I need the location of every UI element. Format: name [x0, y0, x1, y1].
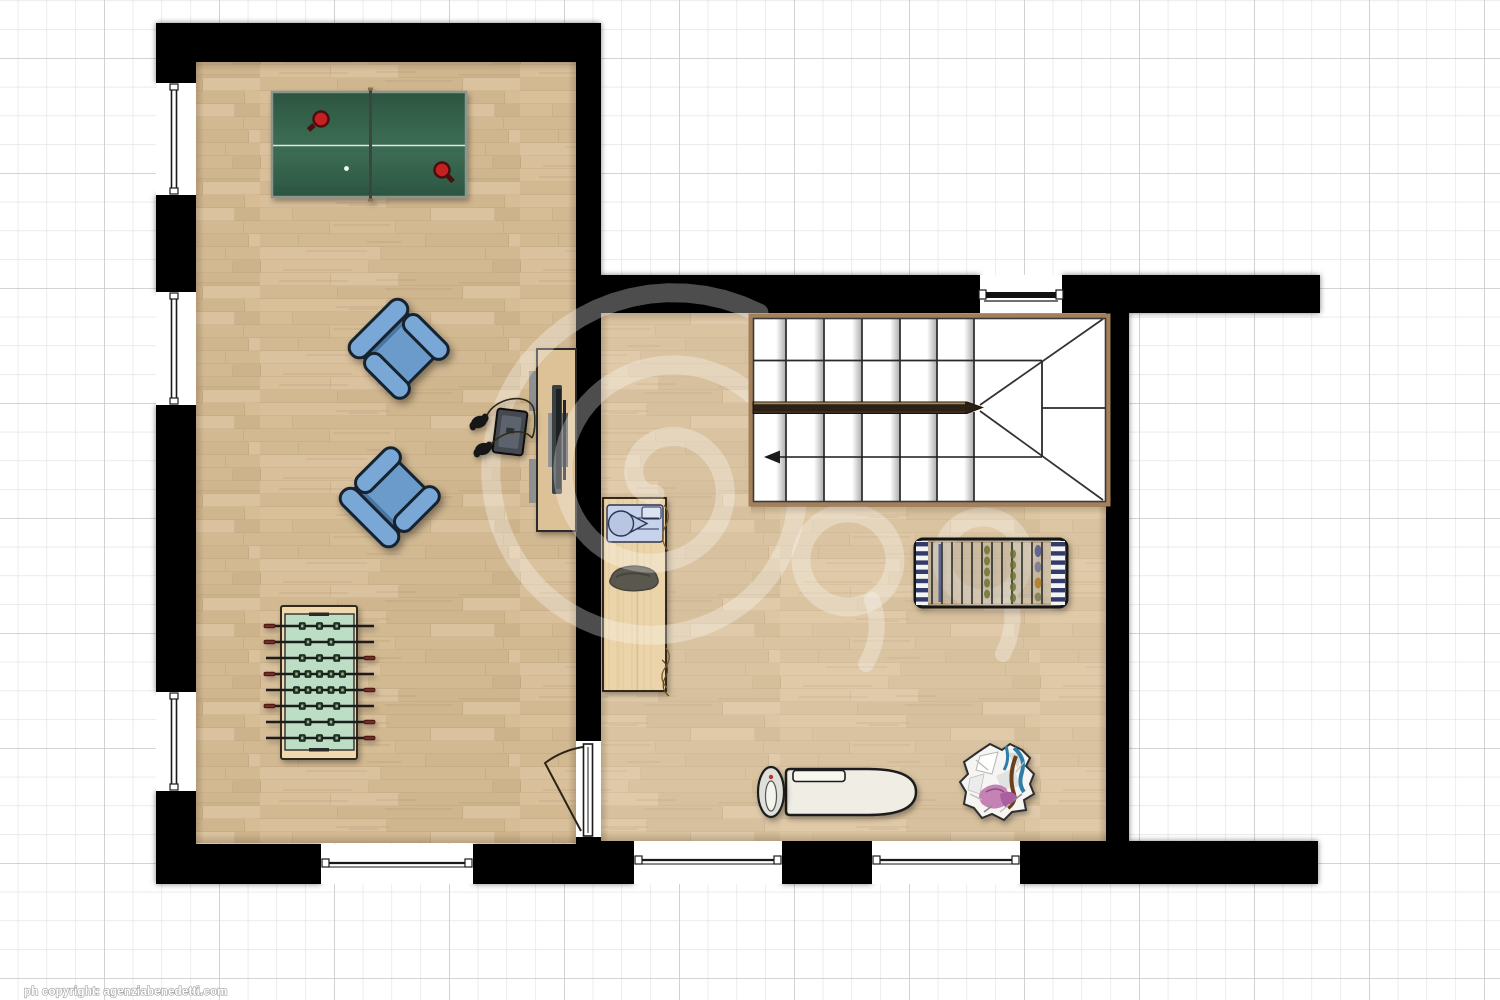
svg-text:ph copyright: agenziabenedetti: ph copyright: agenziabenedetti.com: [24, 986, 228, 998]
